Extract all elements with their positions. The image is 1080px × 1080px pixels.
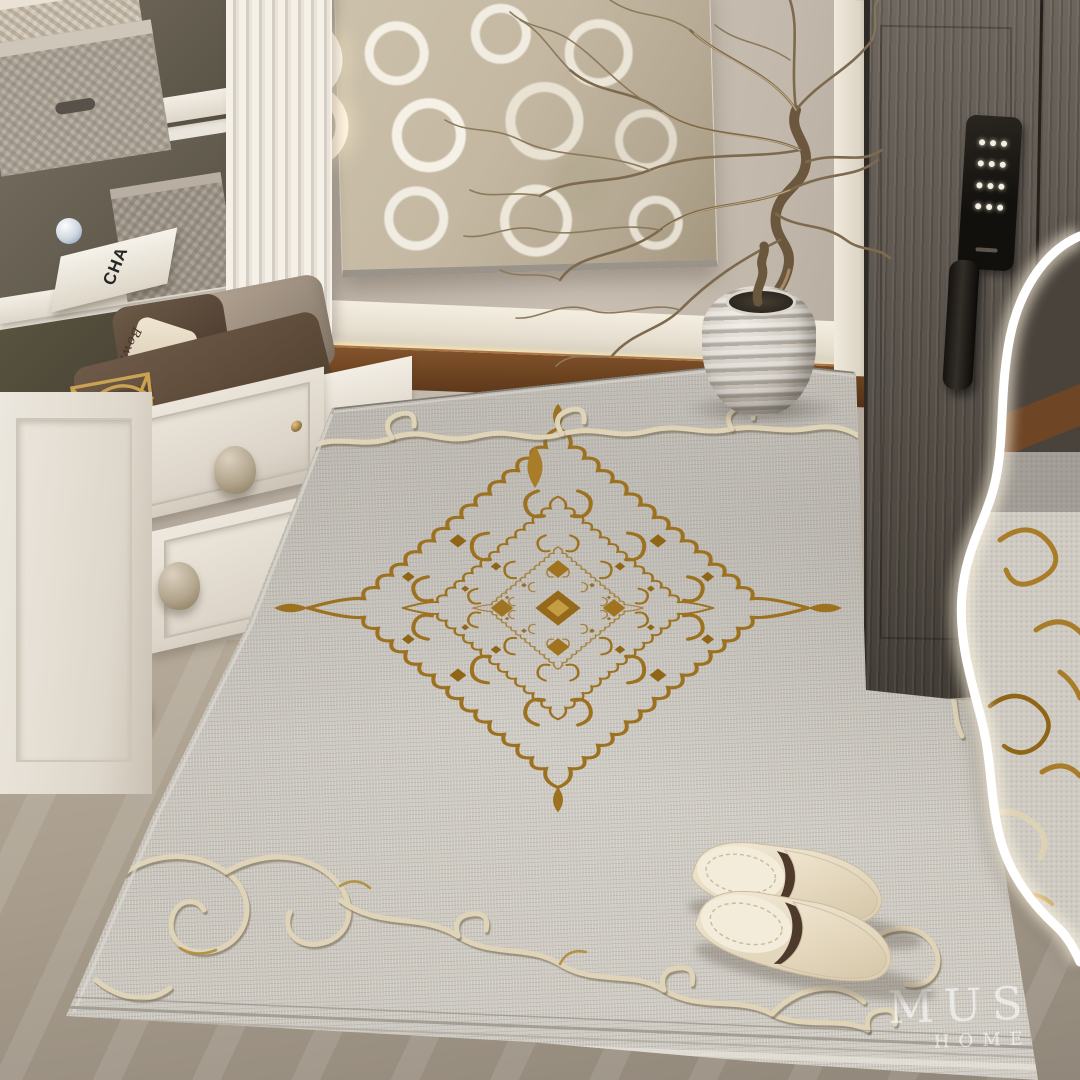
scene-entryway: CHA Bowling	[0, 0, 1080, 1080]
detail-inset-panel	[0, 0, 1080, 1080]
